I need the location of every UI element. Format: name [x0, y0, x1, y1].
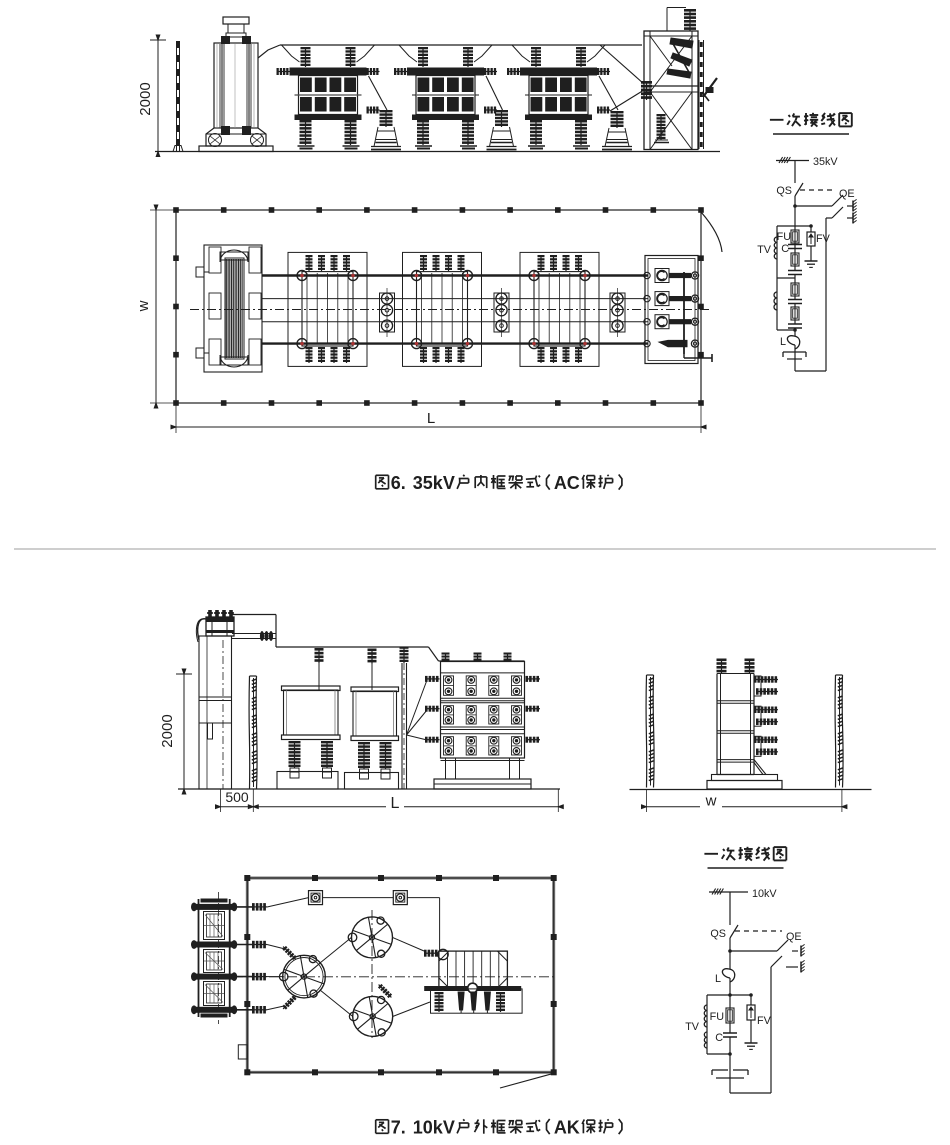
svg-text:35kV: 35kV	[413, 473, 455, 493]
svg-text:FU: FU	[777, 231, 791, 243]
svg-text:2000: 2000	[137, 82, 154, 115]
svg-text:7.: 7.	[391, 1118, 406, 1138]
svg-text:L: L	[715, 973, 721, 985]
svg-text:TV: TV	[685, 1021, 700, 1033]
svg-text:AK: AK	[554, 1118, 580, 1138]
svg-text:L: L	[427, 410, 435, 427]
svg-text:QE: QE	[786, 931, 802, 943]
svg-text:FV: FV	[816, 233, 831, 245]
svg-text:500: 500	[225, 789, 249, 805]
svg-text:6.: 6.	[391, 473, 406, 493]
svg-text:2000: 2000	[159, 714, 176, 747]
svg-text:FV: FV	[757, 1015, 772, 1027]
svg-text:w: w	[135, 300, 152, 312]
svg-text:w: w	[705, 793, 717, 810]
svg-text:AC: AC	[554, 473, 580, 493]
svg-text:QS: QS	[776, 185, 792, 197]
svg-text:QE: QE	[839, 188, 855, 200]
svg-text:C: C	[781, 243, 789, 255]
svg-text:10kV: 10kV	[752, 888, 777, 900]
svg-text:C: C	[715, 1032, 723, 1044]
svg-text:L: L	[391, 795, 400, 812]
svg-text:35kV: 35kV	[813, 156, 838, 168]
svg-text:L: L	[780, 336, 786, 348]
svg-text:10kV: 10kV	[413, 1118, 455, 1138]
svg-text:FU: FU	[710, 1011, 724, 1023]
svg-text:QS: QS	[710, 928, 726, 940]
svg-text:TV: TV	[757, 244, 772, 256]
